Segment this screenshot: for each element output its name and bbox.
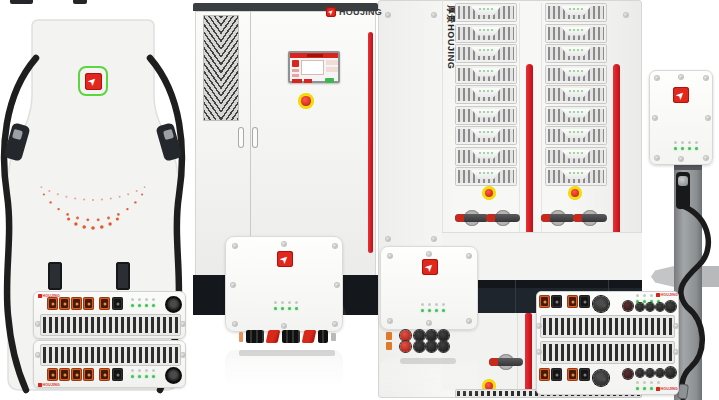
ventilation-grille xyxy=(203,15,239,121)
status-leds xyxy=(421,303,446,313)
hmi-touchscreen[interactable] xyxy=(288,51,340,83)
houjing-logo-icon: ➤ xyxy=(85,73,102,90)
rack-module-column xyxy=(545,3,607,186)
breaker-switch[interactable] xyxy=(541,210,575,226)
breaker-switch[interactable] xyxy=(486,210,520,226)
gun-dock xyxy=(116,262,130,290)
rack-rectifier-module xyxy=(545,65,607,84)
rotary-knob[interactable] xyxy=(593,370,609,386)
fan xyxy=(165,367,182,384)
rack-rectifier-module xyxy=(455,65,517,84)
houjing-logo: ➤ HOUJING xyxy=(326,7,382,17)
power-module: HOUJING xyxy=(33,340,186,388)
gun-dock xyxy=(48,262,62,290)
rack-rectifier-module xyxy=(545,167,607,186)
rack-rectifier-module xyxy=(545,3,607,22)
rack-rectifier-module xyxy=(545,126,607,145)
emergency-stop-button[interactable] xyxy=(298,93,314,109)
rack-rectifier-module xyxy=(545,24,607,43)
inverter-round: ➤ xyxy=(378,244,480,400)
rack-rectifier-module xyxy=(455,167,517,186)
brand-mark: HOUJING xyxy=(38,383,60,387)
rack-rectifier-module xyxy=(545,44,607,63)
vent-grille xyxy=(540,341,675,364)
houjing-logo-text: HOUJING xyxy=(339,7,382,17)
reflection xyxy=(225,350,343,400)
inverter-body: ➤ xyxy=(380,246,478,330)
door-handle[interactable] xyxy=(238,127,244,148)
rack-rectifier-module xyxy=(455,85,517,104)
rack-rectifier-module xyxy=(455,24,517,43)
emergency-stop-button[interactable] xyxy=(482,186,496,200)
rack-rectifier-module xyxy=(455,106,517,125)
houjing-logo-icon: ➤ xyxy=(422,259,438,275)
houjing-logo-icon: ➤ xyxy=(277,251,293,267)
terminal-row xyxy=(225,330,343,346)
vent-grille xyxy=(40,314,181,336)
fan xyxy=(165,296,182,313)
power-module: HOUJING xyxy=(33,291,186,339)
brand-mark: HOUJING xyxy=(656,293,678,297)
red-accent-stripe xyxy=(368,32,373,253)
rack-rectifier-module xyxy=(545,85,607,104)
door-handle[interactable] xyxy=(252,127,258,148)
rack-rectifier-module xyxy=(455,44,517,63)
rack-module-column xyxy=(455,3,517,186)
breaker-switch[interactable] xyxy=(489,354,523,370)
rotary-knob[interactable] xyxy=(593,296,609,312)
houjing-logo: ➤ xyxy=(78,66,108,96)
reflection xyxy=(380,358,478,400)
inverter-body: ➤ xyxy=(225,236,343,332)
breaker-switch[interactable] xyxy=(455,210,489,226)
rack-rectifier-module xyxy=(455,147,517,166)
rack-rectifier-module xyxy=(455,3,517,22)
round-connector-row xyxy=(378,330,480,354)
status-leds xyxy=(674,141,699,151)
houjing-logo-icon: ➤ xyxy=(673,87,689,103)
power-module-wide: HOUJING HOUJING xyxy=(536,291,679,395)
houjing-logo-icon: ➤ xyxy=(326,7,336,17)
breaker-switch[interactable] xyxy=(573,210,607,226)
status-leds xyxy=(131,369,156,379)
brand-mark: HOUJING xyxy=(656,387,678,391)
status-leds xyxy=(274,301,299,311)
vent-grille xyxy=(40,344,181,366)
product-collage-page: { "brand": { "name": "HOUJING", "vertica… xyxy=(0,0,719,400)
status-leds xyxy=(131,298,156,308)
power-module-stack: HOUJING HOUJING xyxy=(33,291,186,389)
rack-rectifier-module xyxy=(545,106,607,125)
vent-grille xyxy=(540,315,675,338)
wallbox-body: ➤ xyxy=(649,70,713,165)
rack-rectifier-module xyxy=(545,147,607,166)
emergency-stop-button[interactable] xyxy=(568,186,582,200)
rack-rectifier-module xyxy=(455,126,517,145)
inverter-compact: ➤ xyxy=(225,236,343,400)
